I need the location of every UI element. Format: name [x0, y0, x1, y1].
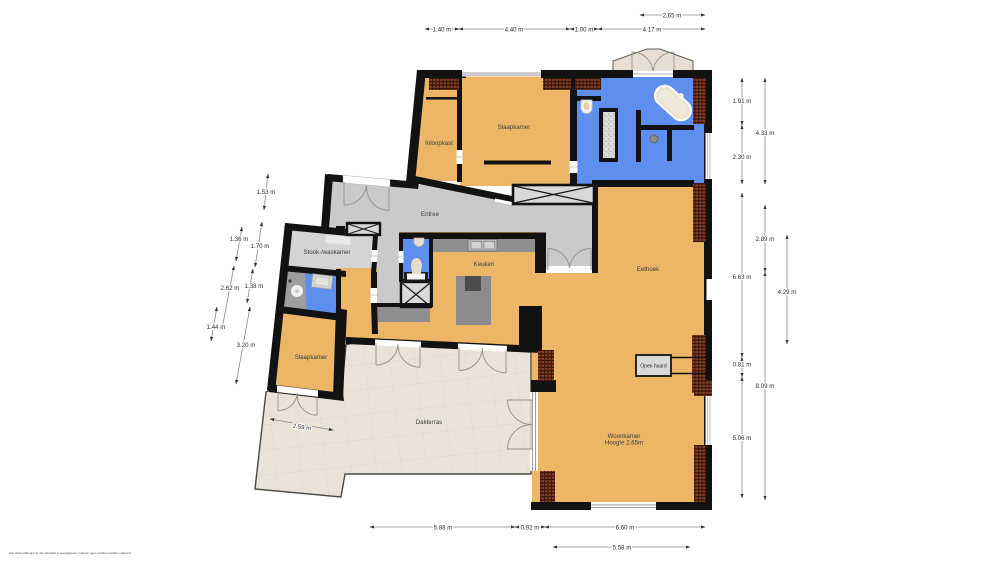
svg-text:Hoogte 2.65m: Hoogte 2.65m — [605, 440, 643, 447]
svg-text:2.65 m: 2.65 m — [663, 13, 682, 20]
svg-text:2.89 m: 2.89 m — [756, 236, 775, 243]
svg-text:1.36 m: 1.36 m — [230, 236, 249, 243]
svg-text:Keuken: Keuken — [474, 261, 495, 268]
svg-text:1.91 m: 1.91 m — [733, 98, 752, 105]
svg-text:3.20 m: 3.20 m — [237, 342, 256, 349]
svg-text:Entree: Entree — [421, 211, 440, 218]
svg-text:1.53 m: 1.53 m — [257, 189, 276, 196]
svg-text:0.92 m: 0.92 m — [521, 525, 540, 532]
svg-text:4.17 m: 4.17 m — [643, 27, 662, 34]
svg-text:5.58 m: 5.58 m — [613, 545, 632, 552]
svg-text:Dakterras: Dakterras — [416, 419, 442, 426]
svg-text:Eethoek: Eethoek — [637, 266, 660, 273]
svg-text:8.09 m: 8.09 m — [756, 383, 775, 390]
svg-text:4.29 m: 4.29 m — [778, 289, 797, 296]
svg-text:1.70 m: 1.70 m — [251, 243, 270, 250]
svg-text:1.00 m: 1.00 m — [575, 27, 594, 34]
svg-text:4.33 m: 4.33 m — [756, 130, 775, 137]
svg-text:6.63 m: 6.63 m — [733, 274, 752, 281]
svg-text:2.62 m: 2.62 m — [221, 285, 240, 292]
svg-text:Inloopkast: Inloopkast — [425, 140, 453, 147]
svg-text:2.30 m: 2.30 m — [733, 154, 752, 161]
svg-text:1.40 m: 1.40 m — [433, 27, 452, 34]
svg-text:1.44 m: 1.44 m — [207, 324, 226, 331]
svg-text:Open haard: Open haard — [640, 364, 667, 370]
svg-text:Slaapkamer: Slaapkamer — [295, 354, 328, 361]
svg-text:Aan deze plattegrond, die indi: Aan deze plattegrond, die indicatief is … — [9, 551, 132, 555]
svg-text:Stook-/waskamer: Stook-/waskamer — [303, 249, 350, 256]
svg-text:Slaapkamer: Slaapkamer — [498, 124, 531, 131]
svg-text:5.88 m: 5.88 m — [434, 525, 453, 532]
svg-text:1.38 m: 1.38 m — [245, 283, 264, 290]
svg-text:6.60 m: 6.60 m — [616, 525, 635, 532]
svg-text:5.06 m: 5.06 m — [733, 435, 752, 442]
svg-text:0.81 m: 0.81 m — [733, 362, 752, 369]
svg-text:4.40 m: 4.40 m — [505, 27, 524, 34]
